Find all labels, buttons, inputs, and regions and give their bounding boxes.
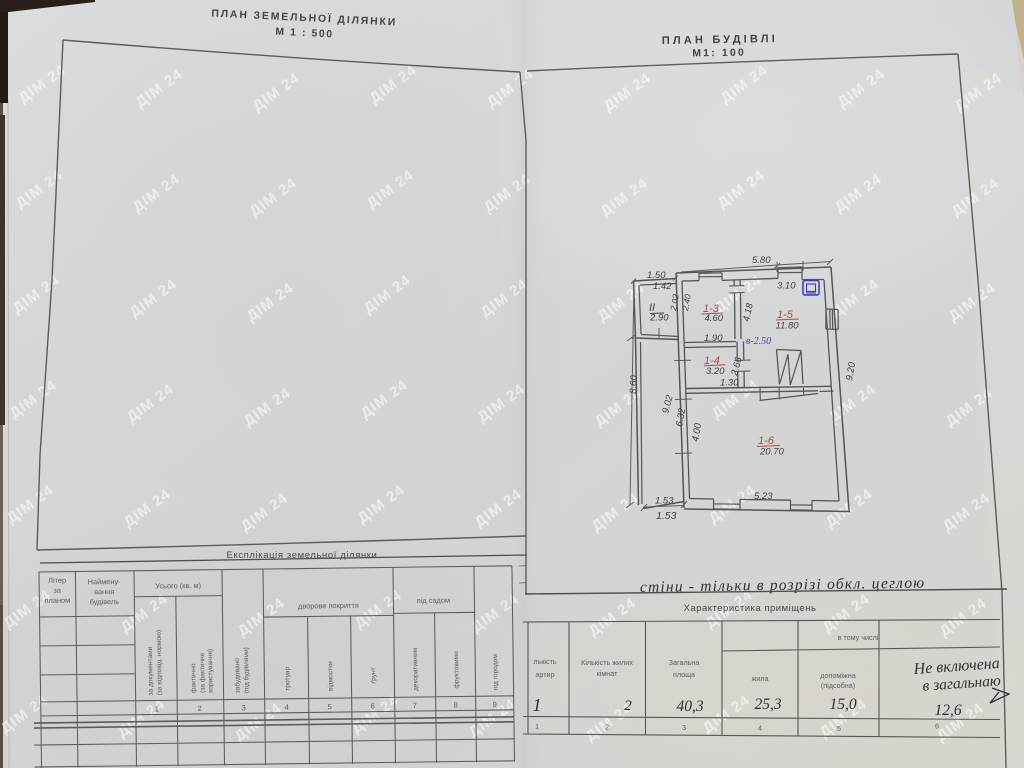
svg-text:артир: артир	[535, 670, 554, 679]
svg-text:забудовано: забудовано	[233, 658, 241, 694]
svg-text:(за відповід. нормою): (за відповід. нормою)	[155, 630, 164, 696]
svg-text:12,6: 12,6	[934, 702, 961, 719]
svg-text:1.90: 1.90	[704, 333, 723, 344]
svg-text:5.23: 5.23	[754, 491, 773, 502]
svg-text:2: 2	[198, 704, 202, 713]
svg-text:1: 1	[533, 695, 542, 715]
svg-text:Загальна: Загальна	[669, 658, 700, 667]
svg-text:8: 8	[454, 701, 458, 710]
svg-text:за документами: за документами	[147, 646, 155, 695]
svg-text:11.80: 11.80	[776, 321, 800, 332]
svg-text:3.20: 3.20	[706, 366, 725, 377]
svg-text:20.70: 20.70	[759, 447, 784, 458]
svg-text:1.53: 1.53	[656, 510, 677, 522]
svg-text:5.80: 5.80	[752, 255, 771, 266]
svg-text:8.60: 8.60	[628, 374, 640, 394]
svg-text:вання: вання	[94, 587, 114, 596]
svg-text:М1: 100: М1: 100	[692, 48, 746, 60]
svg-text:ПЛАН БУДІВЛІ: ПЛАН БУДІВЛІ	[662, 33, 778, 47]
svg-text:дворове покриття: дворове покриття	[298, 601, 359, 611]
svg-text:Характеристика приміщень: Характеристика приміщень	[684, 603, 817, 614]
svg-text:5: 5	[328, 702, 332, 711]
svg-text:площа: площа	[673, 670, 695, 679]
svg-text:за: за	[53, 586, 62, 595]
svg-text:Літер: Літер	[48, 576, 66, 585]
svg-text:Усього (кв. м): Усього (кв. м)	[155, 581, 201, 591]
svg-text:під садом: під садом	[417, 596, 450, 605]
svg-text:4.60: 4.60	[705, 313, 724, 324]
svg-text:3.10: 3.10	[777, 281, 796, 292]
svg-text:3: 3	[682, 723, 686, 732]
svg-text:(підсобна): (підсобна)	[821, 681, 855, 690]
svg-text:Кількість жилих: Кількість жилих	[581, 658, 633, 667]
svg-text:Наймену-: Наймену-	[88, 577, 122, 586]
svg-text:1.42: 1.42	[653, 281, 672, 292]
svg-text:15,0: 15,0	[829, 696, 856, 713]
svg-text:2: 2	[624, 698, 632, 714]
svg-text:4: 4	[285, 703, 289, 712]
svg-text:тротуар: тротуар	[284, 667, 291, 691]
svg-text:6: 6	[371, 702, 375, 711]
svg-text:в тому числі: в тому числі	[838, 633, 879, 642]
svg-text:лькість: лькість	[533, 657, 557, 666]
svg-text:ґрунт: ґрунт	[369, 667, 377, 683]
svg-text:будівель: будівель	[90, 597, 120, 606]
svg-text:1-6: 1-6	[758, 435, 775, 447]
svg-text:фруктовими: фруктовими	[453, 651, 460, 689]
svg-text:40,3: 40,3	[676, 698, 703, 715]
svg-text:декоративним: декоративним	[412, 647, 420, 691]
svg-text:(під будівлями): (під будівлями)	[242, 647, 251, 693]
svg-text:допоміжна: допоміжна	[820, 671, 855, 680]
svg-text:1.50: 1.50	[647, 270, 666, 281]
svg-text:під городом: під городом	[491, 654, 499, 690]
svg-text:4: 4	[758, 724, 762, 733]
svg-text:1: 1	[155, 704, 159, 713]
svg-text:7: 7	[413, 701, 417, 710]
svg-text:кімнат: кімнат	[597, 669, 618, 678]
svg-text:1: 1	[535, 722, 539, 731]
svg-text:(за фактичне: (за фактичне	[199, 652, 207, 693]
svg-text:6: 6	[935, 722, 939, 731]
svg-text:9: 9	[493, 700, 497, 709]
svg-text:планом: планом	[44, 596, 70, 605]
svg-text:3: 3	[242, 703, 246, 712]
svg-text:фактично: фактично	[190, 663, 197, 693]
svg-text:5: 5	[837, 724, 841, 733]
svg-text:в-2.50: в-2.50	[746, 336, 771, 347]
svg-text:відмостки: відмостки	[326, 661, 334, 691]
svg-text:2: 2	[605, 723, 609, 732]
svg-text:користування): користування)	[207, 649, 215, 693]
svg-text:2.90: 2.90	[649, 313, 669, 324]
svg-text:25,3: 25,3	[754, 696, 781, 713]
svg-text:жила: жила	[751, 674, 768, 683]
svg-text:1.30: 1.30	[720, 378, 739, 389]
svg-text:1.53: 1.53	[655, 496, 674, 507]
